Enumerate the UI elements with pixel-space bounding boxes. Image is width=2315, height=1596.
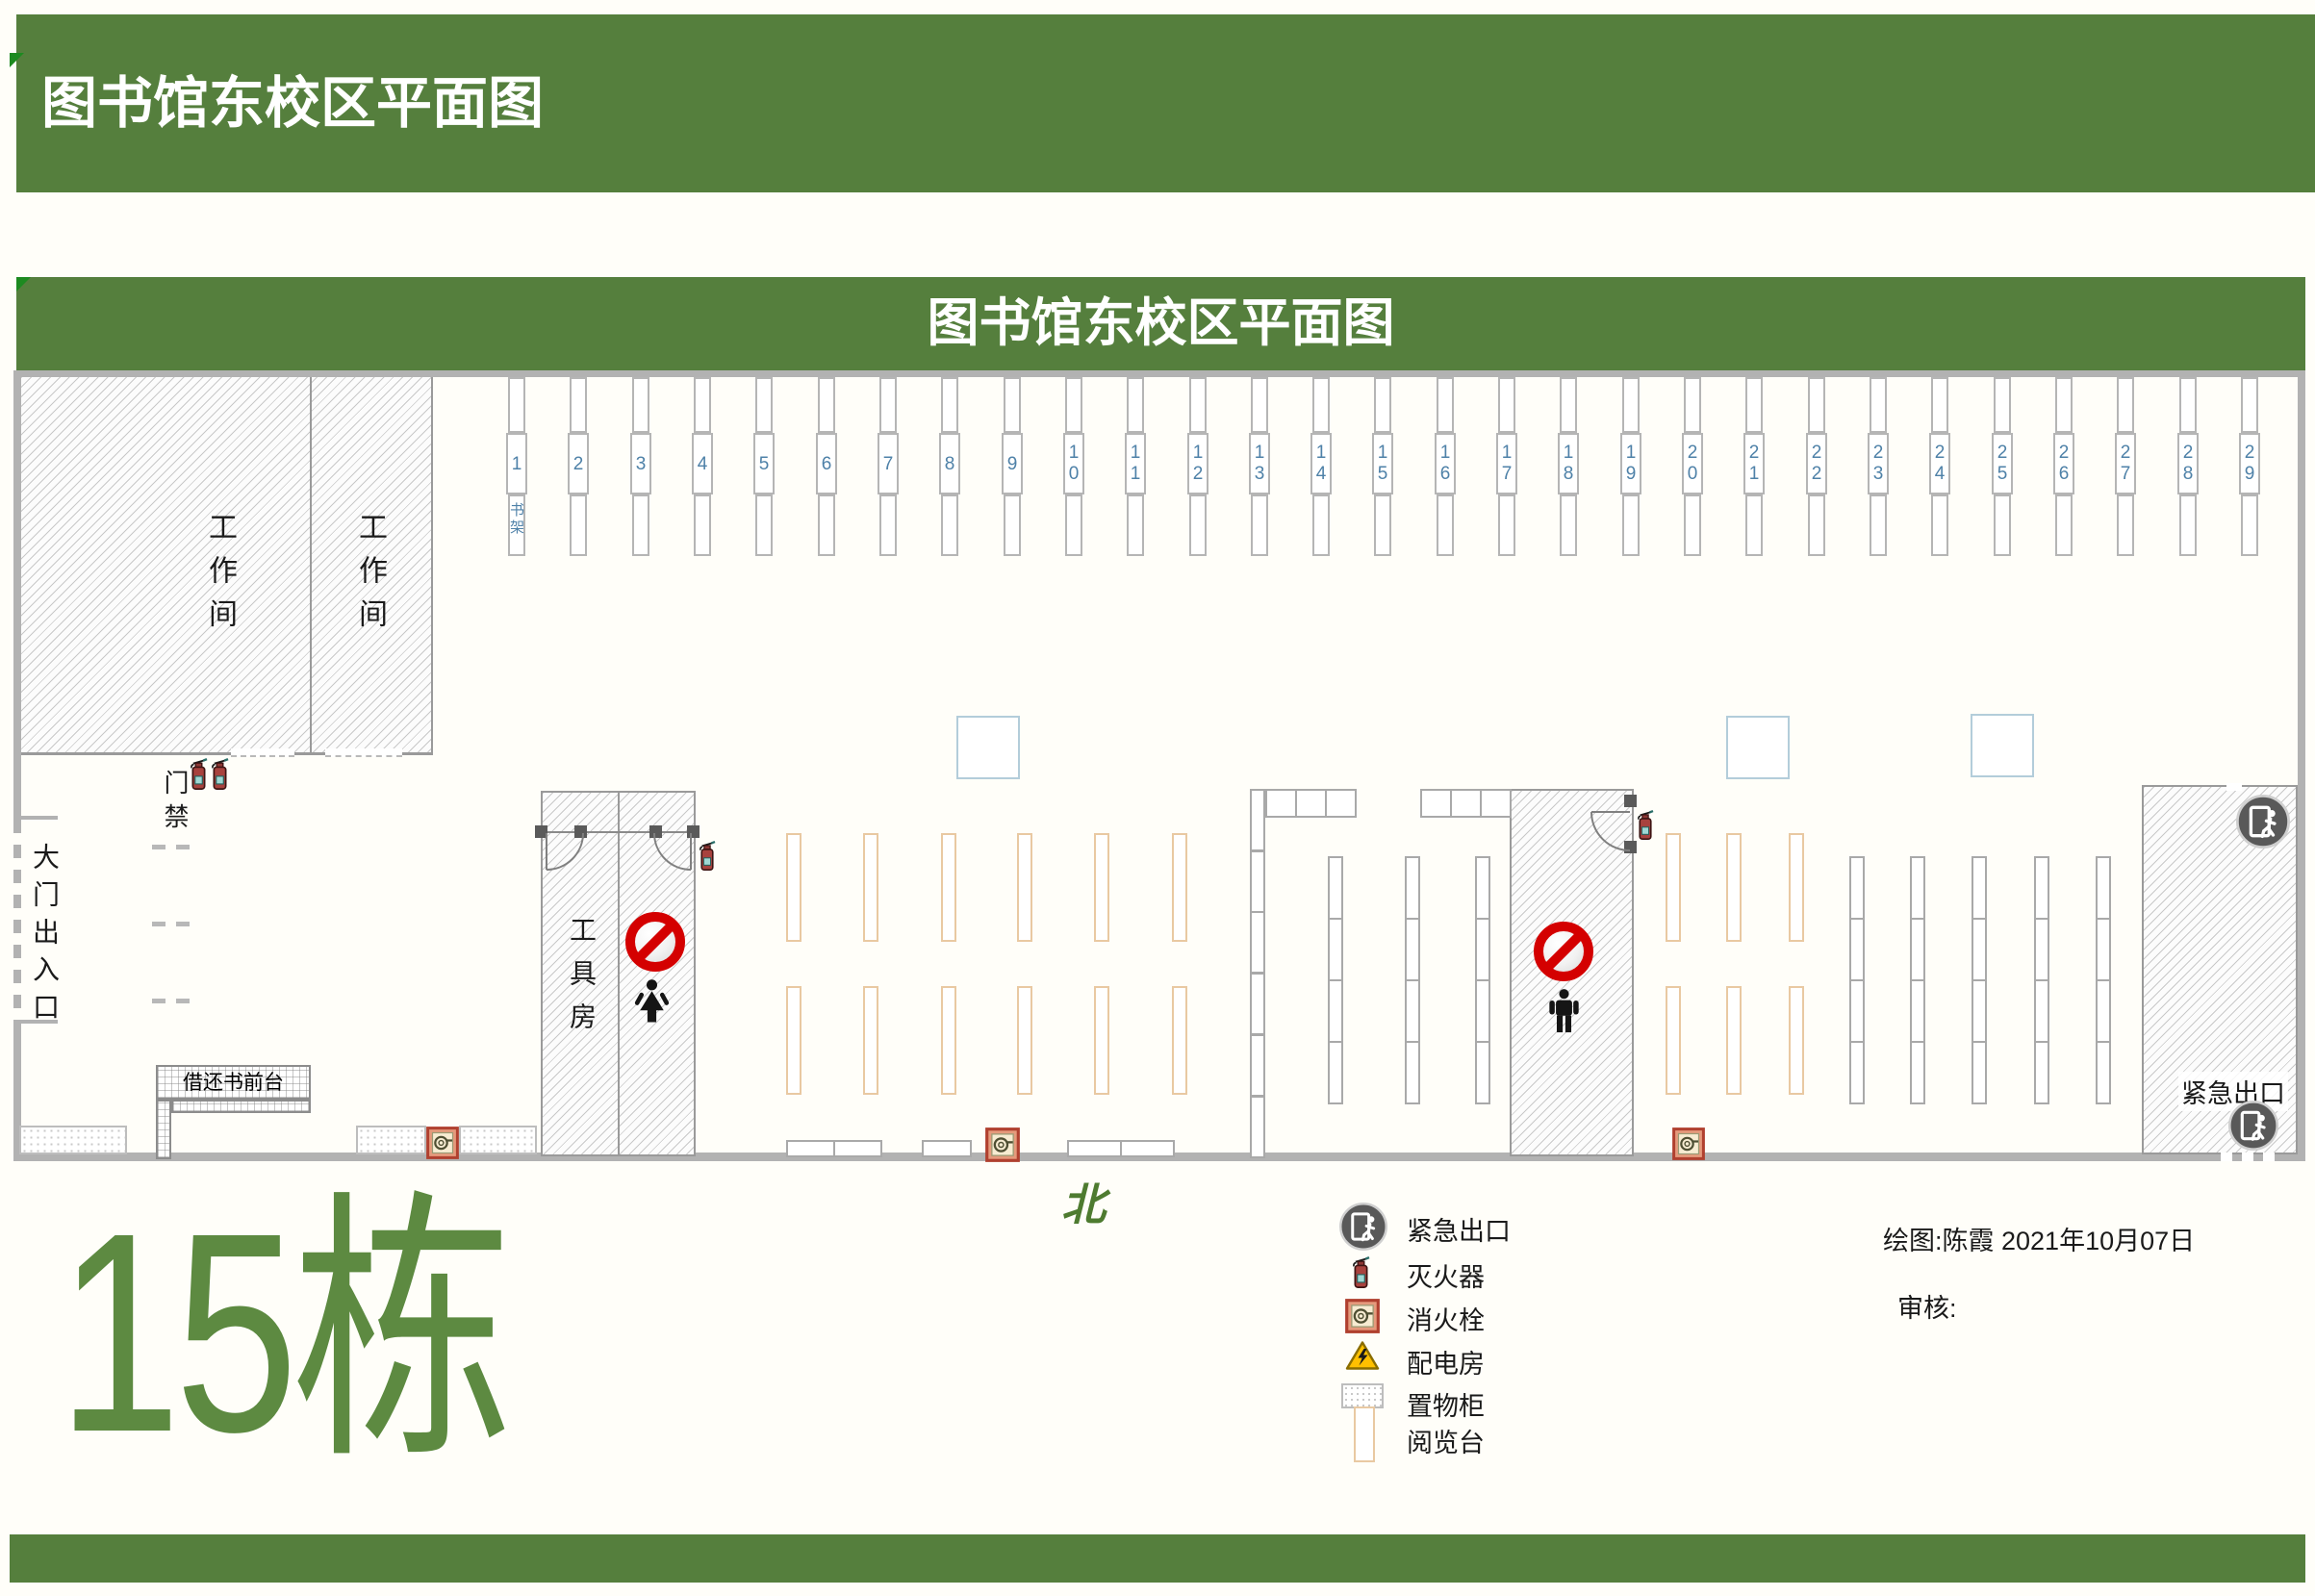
top-locker-cell — [1450, 789, 1482, 818]
bookshelf-bottom — [632, 494, 649, 556]
bookshelf-top — [818, 377, 835, 433]
gray-shelf-seg — [1972, 856, 1987, 920]
center-wall-seg — [1250, 911, 1265, 974]
bookshelf-top — [1251, 377, 1268, 433]
legend-label: 配电房 — [1407, 1343, 1485, 1381]
bookshelf-bottom — [1931, 494, 1948, 556]
gray-shelf-seg — [1910, 1041, 1925, 1104]
mens-restroom-icon — [1545, 989, 1583, 1033]
locker-strip — [356, 1126, 426, 1154]
locker-strip — [19, 1126, 127, 1154]
bookshelf-number: 3 — [632, 454, 649, 475]
bookshelf-number: 17 — [1498, 443, 1515, 485]
bookshelf-number: 10 — [1065, 443, 1082, 485]
bookshelf-top — [1189, 377, 1207, 433]
bookshelf-number-seg: 1 — [506, 433, 527, 494]
gray-shelf-seg — [1475, 856, 1490, 920]
bookshelf-number-seg: 26 — [2053, 433, 2074, 494]
door-hinge — [687, 825, 700, 838]
gate-dash — [176, 845, 190, 849]
bookshelf-number-seg: 7 — [878, 433, 899, 494]
bookshelf-number-seg: 4 — [692, 433, 713, 494]
reading-table — [1172, 986, 1187, 1095]
bookshelf-top — [1870, 377, 1887, 433]
reading-table — [863, 833, 878, 942]
bookshelf-bottom — [1870, 494, 1887, 556]
fire-hydrant-icon — [1672, 1127, 1705, 1160]
plan-title-banner: 图书馆东校区平面图 — [16, 277, 2305, 370]
bookshelf-top — [1622, 377, 1640, 433]
bookshelf-top — [508, 377, 525, 433]
bookshelf-bottom — [1622, 494, 1640, 556]
bookshelf-bottom — [818, 494, 835, 556]
plan-banner-fold-icon — [16, 277, 31, 291]
front-desk-label: 借还书前台 — [183, 1072, 284, 1094]
reading-table — [786, 833, 801, 942]
bookshelf-bottom — [1560, 494, 1577, 556]
bookshelf-number-seg: 23 — [1868, 433, 1889, 494]
fire-extinguisher-icon — [189, 758, 209, 791]
bookshelf-number-seg: 5 — [753, 433, 775, 494]
column-marker-2 — [1726, 716, 1790, 779]
bookshelf-top — [1498, 377, 1515, 433]
bottom-locker-cell — [922, 1140, 972, 1157]
top-banner-fold-icon — [10, 53, 24, 67]
top-locker-cell — [1295, 789, 1327, 818]
bookshelf-top — [941, 377, 958, 433]
bookshelf-number-seg: 24 — [1929, 433, 1950, 494]
locker-icon — [1341, 1383, 1384, 1408]
gray-shelf-seg — [1328, 918, 1343, 981]
bookshelf-bottom — [1745, 494, 1763, 556]
fire-hydrant-icon — [1345, 1299, 1380, 1333]
bookshelf-number-seg: 9 — [1002, 433, 1023, 494]
legend-label: 消火栓 — [1407, 1300, 1485, 1337]
workroom2-door — [325, 748, 402, 757]
no-entry-sign — [1534, 922, 1593, 981]
bookshelf-bottom — [1127, 494, 1144, 556]
bottom-locker-cell — [1120, 1140, 1175, 1157]
bookshelf-top — [1808, 377, 1825, 433]
bookshelf-number-seg: 14 — [1310, 433, 1332, 494]
center-wall-seg — [1250, 789, 1265, 851]
bookshelf-number-seg: 28 — [2177, 433, 2199, 494]
reading-table — [941, 986, 956, 1095]
bookshelf-number-seg: 19 — [1620, 433, 1641, 494]
bookshelf-number: 24 — [1931, 443, 1948, 485]
gray-shelf-seg — [2034, 1041, 2049, 1104]
center-wall-seg — [1250, 1096, 1265, 1158]
tool-room-label: 工具房 — [562, 916, 600, 1046]
bookshelf-bottom — [694, 494, 711, 556]
gray-shelf-seg — [1328, 979, 1343, 1043]
gray-shelf-seg — [1910, 918, 1925, 981]
center-wall-seg — [1250, 973, 1265, 1035]
fire-extinguisher-icon — [1636, 810, 1655, 841]
bookshelf-number: 13 — [1251, 443, 1268, 485]
bookshelf-number: 14 — [1312, 443, 1330, 485]
gray-shelf-seg — [1849, 979, 1865, 1043]
bookshelf-number-seg: 3 — [630, 433, 651, 494]
gray-shelf-seg — [1405, 856, 1420, 920]
fire-hydrant-icon — [426, 1127, 459, 1159]
bookshelf-number: 21 — [1745, 443, 1763, 485]
bookshelf-number: 28 — [2179, 443, 2197, 485]
bookshelf-number: 27 — [2117, 443, 2134, 485]
north-label: 北 — [1061, 1170, 1106, 1233]
workroom2-label: 工作间 — [348, 512, 391, 642]
drawn-by-text: 绘图:陈霞 2021年10月07日 — [1883, 1220, 2195, 1257]
bookshelf-number: 29 — [2241, 443, 2258, 485]
bookshelf-number-seg: 10 — [1063, 433, 1084, 494]
fire-extinguisher-icon — [698, 841, 717, 872]
reading-table — [1094, 986, 1109, 1095]
bookshelf-number: 11 — [1127, 443, 1144, 485]
bookshelf-top — [1994, 377, 2011, 433]
gray-shelf-seg — [2034, 979, 2049, 1043]
bookshelf-bottom — [1684, 494, 1701, 556]
no-entry-sign — [625, 912, 685, 972]
reading-table — [1789, 986, 1804, 1095]
bookshelf-number-seg: 8 — [939, 433, 960, 494]
top-locker-cell — [1420, 789, 1452, 818]
legend-label: 阅览台 — [1407, 1422, 1485, 1459]
emergency-exit-icon — [1339, 1203, 1387, 1251]
plan-top-wall — [13, 370, 2305, 377]
top-locker-cell — [1265, 789, 1297, 818]
reading-table — [1666, 986, 1681, 1095]
bookshelf-bottom — [1189, 494, 1207, 556]
bookshelf-bottom — [1374, 494, 1391, 556]
bookshelf-number: 26 — [2055, 443, 2073, 485]
bookshelf-bottom — [941, 494, 958, 556]
bookshelf-top — [632, 377, 649, 433]
legend-label: 置物柜 — [1407, 1385, 1485, 1423]
fire-hydrant-icon — [985, 1127, 1020, 1162]
bookshelf-number: 2 — [570, 454, 587, 475]
bookshelf-top — [2055, 377, 2073, 433]
reading-table — [1666, 833, 1681, 942]
bottom-locker-cell — [1067, 1140, 1122, 1157]
bookshelf-number: 7 — [879, 454, 897, 475]
power-room-icon — [1345, 1340, 1380, 1371]
door-hinge — [574, 825, 587, 838]
exit-corridor-bottom-door — [2221, 1153, 2282, 1161]
bookshelf-top — [1684, 377, 1701, 433]
reading-table — [1726, 833, 1742, 942]
gray-shelf-seg — [1405, 1041, 1420, 1104]
bookshelf-number-seg: 20 — [1682, 433, 1703, 494]
door-hinge — [535, 825, 547, 838]
gray-shelf-seg — [1849, 918, 1865, 981]
reading-table — [863, 986, 878, 1095]
bookshelf-top — [570, 377, 587, 433]
bookshelf-number-seg: 11 — [1125, 433, 1146, 494]
gate-dash — [176, 922, 190, 926]
bookshelf-number-seg: 13 — [1249, 433, 1270, 494]
bookshelf-top — [1560, 377, 1577, 433]
bookshelf-number-seg: 25 — [1992, 433, 2013, 494]
workroom1-door — [231, 748, 294, 757]
bookshelf-top — [1312, 377, 1330, 433]
bookshelf-bottom — [1312, 494, 1330, 556]
bookshelf-bottom — [1498, 494, 1515, 556]
bookshelf-top — [694, 377, 711, 433]
front-desk-leg — [156, 1100, 171, 1159]
gray-shelf-seg — [1475, 979, 1490, 1043]
reading-table — [941, 833, 956, 942]
top-locker-cell — [1480, 789, 1512, 818]
bookshelf-top — [1745, 377, 1763, 433]
gray-shelf-seg — [1405, 979, 1420, 1043]
bookshelf-number: 8 — [941, 454, 958, 475]
locker-strip — [459, 1126, 537, 1154]
bottom-bar — [10, 1534, 2305, 1583]
page-title: 图书馆东校区平面图 — [41, 72, 544, 135]
reading-table — [786, 986, 801, 1095]
bookshelf-number-seg: 15 — [1372, 433, 1393, 494]
bookshelf-number-seg: 2 — [568, 433, 589, 494]
bookshelf-bottom — [2179, 494, 2197, 556]
tool-room-divider — [618, 791, 620, 1156]
bookshelf-bottom — [570, 494, 587, 556]
bookshelf-bottom — [1437, 494, 1454, 556]
bookshelf-number-seg: 17 — [1496, 433, 1517, 494]
gray-shelf-seg — [1405, 918, 1420, 981]
top-banner: 图书馆东校区平面图 — [16, 14, 2315, 192]
womens-restroom-icon — [633, 979, 671, 1024]
legend-label: 灭火器 — [1407, 1256, 1485, 1294]
gray-shelf-seg — [1475, 918, 1490, 981]
reading-table — [1094, 833, 1109, 942]
bookshelf-bottom — [1808, 494, 1825, 556]
bookshelf-number: 20 — [1684, 443, 1701, 485]
bookshelf-bottom: 书架 — [508, 494, 525, 556]
legend-label: 紧急出口 — [1407, 1210, 1511, 1248]
bookshelf-bottom — [2241, 494, 2258, 556]
bookshelf-top — [1931, 377, 1948, 433]
gray-shelf-seg — [1910, 979, 1925, 1043]
bookshelf-bottom — [2117, 494, 2134, 556]
plan-title: 图书馆东校区平面图 — [928, 294, 1395, 352]
bookshelf-number: 23 — [1870, 443, 1887, 485]
bookshelf-number: 1 — [508, 454, 525, 475]
column-marker-3 — [1971, 714, 2034, 777]
bookshelf-bottom — [1065, 494, 1082, 556]
bookshelf-number: 5 — [755, 454, 773, 475]
reviewed-by-text: 审核: — [1897, 1287, 1957, 1325]
front-desk: 借还书前台 — [156, 1065, 311, 1100]
bookshelf-number: 22 — [1808, 443, 1825, 485]
bookshelf-top — [755, 377, 773, 433]
bookshelf-number: 19 — [1622, 443, 1640, 485]
bookshelf-number-seg: 22 — [1806, 433, 1827, 494]
bookshelf-top — [1065, 377, 1082, 433]
center-wall-seg — [1250, 850, 1265, 913]
bookshelf-top — [2241, 377, 2258, 433]
entrance-jamb-top — [21, 816, 58, 820]
workroom-divider — [310, 377, 312, 755]
bookshelf-bottom — [1994, 494, 2011, 556]
bookshelf-bottom — [755, 494, 773, 556]
bookshelf-bottom — [1251, 494, 1268, 556]
bookshelf-top — [1437, 377, 1454, 433]
front-desk-lower — [171, 1100, 311, 1113]
bookshelf-number: 4 — [694, 454, 711, 475]
entrance-label: 大门出入口 — [25, 843, 64, 1030]
bookshelf-number-seg: 27 — [2115, 433, 2136, 494]
fire-extinguisher-icon — [210, 758, 230, 791]
gray-shelf-seg — [2096, 979, 2111, 1043]
bookshelf-top — [2179, 377, 2197, 433]
entrance-opening — [13, 820, 21, 1022]
floor-plan-page: 图书馆东校区平面图 图书馆东校区平面图 大门出入口 工作间 工作间 门禁 工具房… — [0, 0, 2315, 1596]
gray-shelf-seg — [1972, 918, 1987, 981]
plan-left-wall-upper — [13, 370, 21, 820]
door-hinge — [1624, 841, 1637, 853]
tool-room-door-line — [541, 831, 696, 833]
gray-shelf-seg — [1849, 856, 1865, 920]
bookshelf-number: 12 — [1189, 443, 1207, 485]
gate-dash — [152, 999, 165, 1003]
gray-shelf-seg — [1475, 1041, 1490, 1104]
reading-table — [1017, 833, 1032, 942]
bookshelf-bottom — [2055, 494, 2073, 556]
bookshelf-number: 25 — [1994, 443, 2011, 485]
exit-corridor-top-door — [2226, 783, 2242, 791]
top-locker-cell — [1325, 789, 1357, 818]
bookshelf-bottom — [879, 494, 897, 556]
bookshelf-number: 16 — [1437, 443, 1454, 485]
plan-right-wall — [2298, 370, 2305, 1161]
bookshelf-top — [1127, 377, 1144, 433]
gray-shelf-seg — [2096, 918, 2111, 981]
bookshelf-top — [1004, 377, 1021, 433]
workroom1-label: 工作间 — [198, 512, 241, 642]
door-hinge — [649, 825, 662, 838]
bookshelf-top — [2117, 377, 2134, 433]
bookshelf-top — [1374, 377, 1391, 433]
reading-table — [1172, 833, 1187, 942]
gray-shelf-seg — [1328, 856, 1343, 920]
gray-shelf-seg — [2034, 856, 2049, 920]
bookshelf-number-seg: 6 — [816, 433, 837, 494]
bookshelf-number-seg: 29 — [2239, 433, 2260, 494]
bookshelf-number-seg: 16 — [1435, 433, 1456, 494]
center-wall-seg — [1250, 1034, 1265, 1097]
bottom-locker-cell — [786, 1140, 835, 1157]
bookshelf-number-seg: 21 — [1743, 433, 1765, 494]
emergency-exit-icon — [2236, 795, 2290, 849]
bookshelf-top — [879, 377, 897, 433]
column-marker-1 — [956, 716, 1020, 779]
building-number: 15栋 — [58, 1191, 507, 1475]
gray-shelf-seg — [1849, 1041, 1865, 1104]
gray-shelf-seg — [1972, 979, 1987, 1043]
reading-table — [1017, 986, 1032, 1095]
door-hinge — [1624, 795, 1637, 807]
reading-table-icon — [1354, 1406, 1375, 1462]
gate-dash — [152, 922, 165, 926]
bookshelf-number: 9 — [1004, 454, 1021, 475]
bookshelf-number: 18 — [1560, 443, 1577, 485]
fire-extinguisher-icon — [1351, 1256, 1371, 1289]
bookshelf-word-label: 书架 — [510, 502, 523, 537]
bookshelf-number-seg: 18 — [1558, 433, 1579, 494]
gray-shelf-seg — [2096, 1041, 2111, 1104]
bookshelf-bottom — [1004, 494, 1021, 556]
bookshelf-number: 6 — [818, 454, 835, 475]
bookshelf-number-seg: 12 — [1187, 433, 1208, 494]
gray-shelf-seg — [1972, 1041, 1987, 1104]
gate-dash — [152, 845, 165, 849]
reading-table — [1789, 833, 1804, 942]
bookshelf-number: 15 — [1374, 443, 1391, 485]
bottom-locker-cell — [833, 1140, 882, 1157]
gray-shelf-seg — [1910, 856, 1925, 920]
gate-dash — [176, 999, 190, 1003]
gray-shelf-seg — [1328, 1041, 1343, 1104]
emergency-exit-icon — [2228, 1101, 2278, 1151]
gray-shelf-seg — [2034, 918, 2049, 981]
gray-shelf-seg — [2096, 856, 2111, 920]
reading-table — [1726, 986, 1742, 1095]
